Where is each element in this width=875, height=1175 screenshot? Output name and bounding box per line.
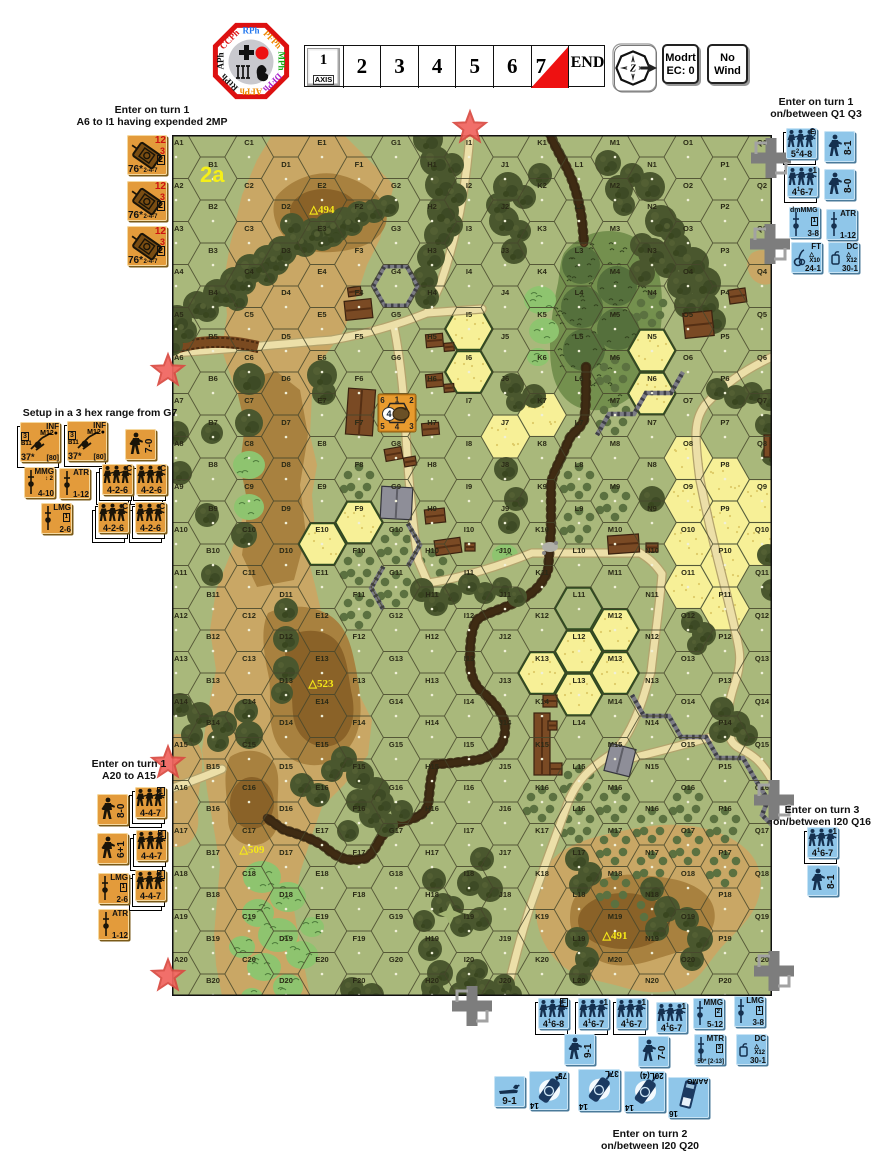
svg-text:MPh: MPh bbox=[276, 52, 286, 71]
svg-text:RPh: RPh bbox=[242, 26, 259, 36]
svg-text:AFPh: AFPh bbox=[240, 86, 263, 96]
svg-text:APh: APh bbox=[216, 52, 226, 69]
svg-text:Z: Z bbox=[629, 64, 636, 75]
